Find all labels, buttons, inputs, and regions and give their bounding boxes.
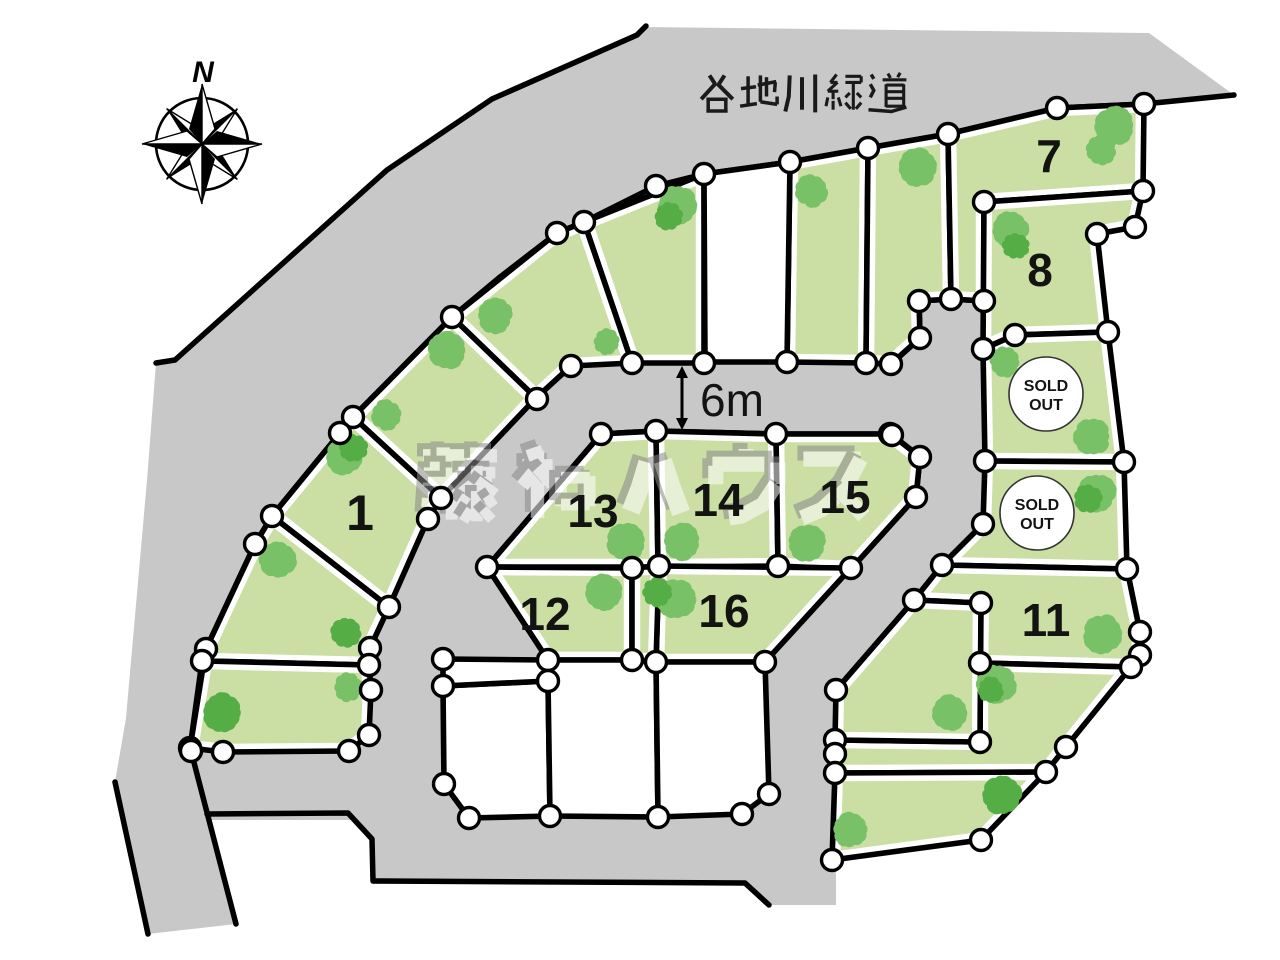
- svg-text:15: 15: [819, 471, 870, 523]
- svg-text:11: 11: [1022, 594, 1071, 646]
- svg-text:OUT: OUT: [1029, 397, 1063, 414]
- svg-text:N: N: [192, 56, 215, 89]
- svg-text:13: 13: [567, 485, 618, 537]
- svg-text:6m: 6m: [700, 374, 764, 426]
- svg-text:16: 16: [698, 585, 749, 637]
- svg-text:14: 14: [692, 474, 744, 526]
- svg-text:SOLD: SOLD: [1024, 378, 1068, 395]
- svg-text:1: 1: [346, 485, 374, 541]
- svg-text:OUT: OUT: [1020, 516, 1054, 533]
- svg-text:12: 12: [519, 588, 570, 640]
- svg-text:8: 8: [1027, 244, 1053, 296]
- svg-text:SOLD: SOLD: [1015, 497, 1059, 514]
- svg-text:7: 7: [1036, 130, 1062, 182]
